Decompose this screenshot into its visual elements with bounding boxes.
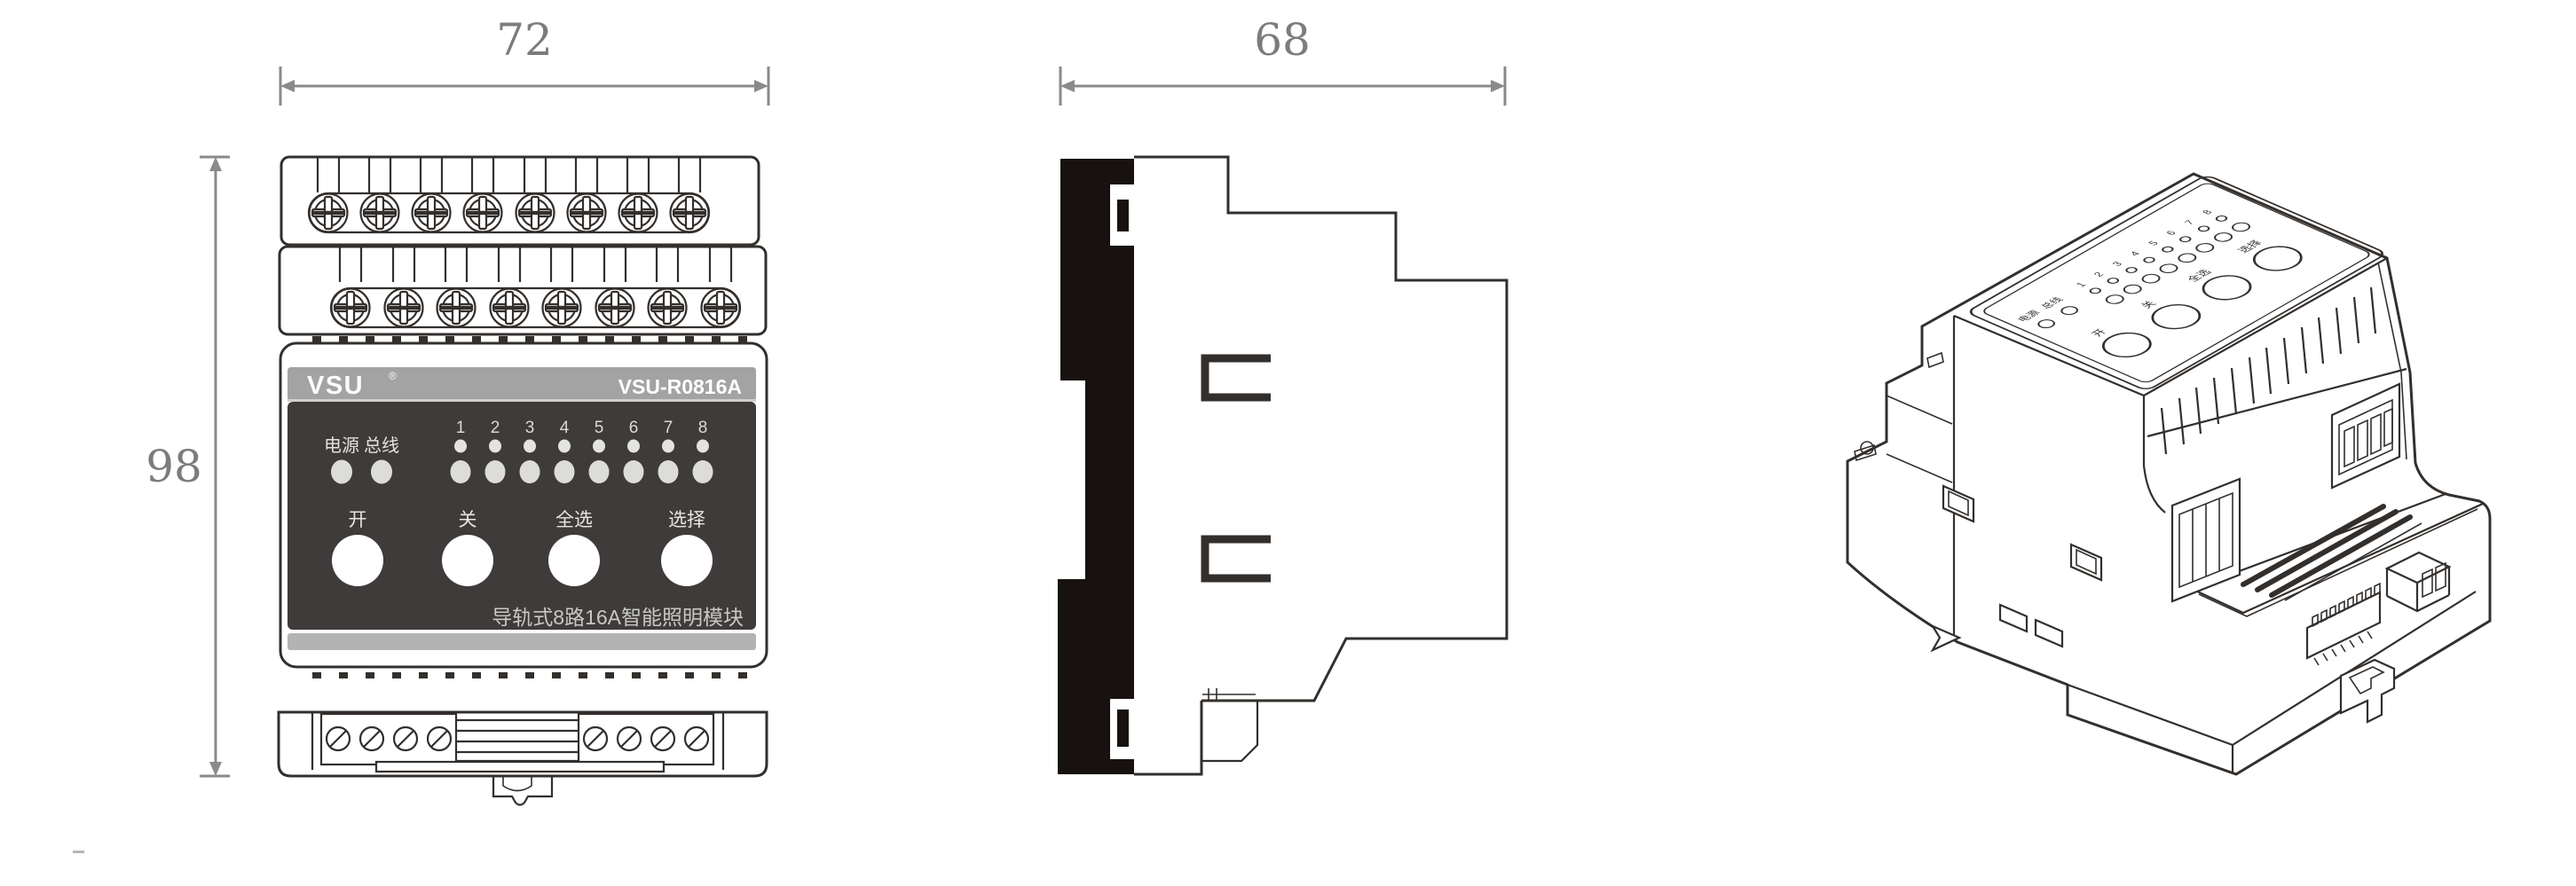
off-button: [442, 535, 493, 586]
button-all-label: 全选: [555, 510, 593, 530]
vent-dash-row: [312, 336, 747, 342]
terminal-screw-icon: [568, 194, 606, 232]
depth-dimension: 68: [1060, 14, 1505, 106]
bottom-terminal-screw-icon: [360, 727, 383, 750]
terminal-screw-icon: [437, 289, 476, 327]
lower-stripe: [288, 633, 756, 650]
top-terminal-row-2: [280, 247, 766, 334]
power-led: [331, 460, 352, 484]
bottom-terminal-screw-icon: [618, 727, 641, 750]
arrow-right-icon: [1491, 80, 1505, 92]
side-din-clip: [1201, 701, 1257, 761]
terminal-screw-icon: [671, 194, 709, 232]
terminal-screw-icon: [385, 289, 423, 327]
bus-led: [371, 460, 392, 484]
terminal-screw-icon: [702, 289, 740, 327]
bus-label: 总线: [364, 435, 399, 456]
side-body-outline: [1134, 157, 1507, 774]
depth-dimension-label: 68: [1254, 14, 1311, 66]
product-name-label: 导轨式8路16A智能照明模块: [492, 606, 744, 629]
arrow-left-icon: [1060, 80, 1075, 92]
select-all-button: [548, 535, 600, 586]
channel-number: 1: [456, 419, 466, 437]
on-button: [332, 535, 383, 586]
terminal-screw-icon: [516, 194, 555, 232]
bottom-terminal-screw-icon: [394, 727, 417, 750]
din-clip: [493, 776, 552, 805]
channel-number: 7: [664, 419, 674, 437]
arrow-left-icon: [280, 80, 295, 92]
channel-number: 2: [491, 419, 500, 437]
din-rail-slot: [376, 762, 664, 772]
bottom-terminal-screw-icon: [651, 727, 674, 750]
vent-dash-row: [312, 672, 747, 678]
channel-number: 5: [595, 419, 604, 437]
isometric-view: 电源 总线 1 2 3 4 5 6 7 8 开 关 全选: [1847, 174, 2490, 774]
height-dimension: 98: [146, 157, 230, 776]
terminal-screw-icon: [464, 194, 502, 232]
drawing-svg: 72 98: [0, 0, 2576, 886]
button-off-label: 关: [459, 510, 477, 530]
bottom-terminal-screw-icon: [428, 727, 451, 750]
select-button: [661, 535, 713, 586]
bottom-terminal-screw-icon: [685, 727, 708, 750]
width-dimension-label: 72: [496, 14, 553, 66]
channel-number: 6: [629, 419, 639, 437]
side-view: 68: [1058, 14, 1507, 774]
top-terminal-row-1: [281, 157, 759, 245]
width-dimension: 72: [280, 14, 768, 106]
brand-logo: VSU: [307, 372, 364, 400]
terminal-screw-icon: [413, 194, 451, 232]
bottom-terminal-screw-icon: [327, 727, 350, 750]
channel-number: 3: [525, 419, 535, 437]
arrow-up-icon: [209, 157, 222, 171]
power-label: 电源: [324, 435, 359, 456]
terminal-screw-icon: [596, 289, 634, 327]
din-rail-mount-bar: [1058, 159, 1135, 774]
terminal-screw-icon: [361, 194, 399, 232]
arrow-right-icon: [754, 80, 768, 92]
button-on-label: 开: [349, 510, 367, 530]
terminal-screw-icon: [310, 194, 348, 232]
channel-number: 8: [698, 419, 708, 437]
button-select-label: 选择: [668, 510, 705, 530]
registered-mark: ®: [389, 370, 397, 382]
channel-number: 4: [560, 419, 570, 437]
front-bottom-terminals: [279, 712, 767, 805]
height-dimension-label: 98: [146, 441, 202, 492]
technical-drawing-page: { "title": "VSU-R0816A rail-mounted ligh…: [0, 0, 2576, 886]
page-artifact-mark: [73, 851, 84, 853]
terminal-screw-icon: [332, 289, 370, 327]
front-view: 72 98: [146, 14, 768, 805]
terminal-screw-icon: [649, 289, 687, 327]
model-label: VSU-R0816A: [618, 375, 742, 398]
bottom-terminal-screw-icon: [584, 727, 607, 750]
terminal-screw-icon: [491, 289, 529, 327]
terminal-screw-icon: [543, 289, 581, 327]
terminal-screw-icon: [619, 194, 658, 232]
arrow-down-icon: [209, 762, 222, 776]
